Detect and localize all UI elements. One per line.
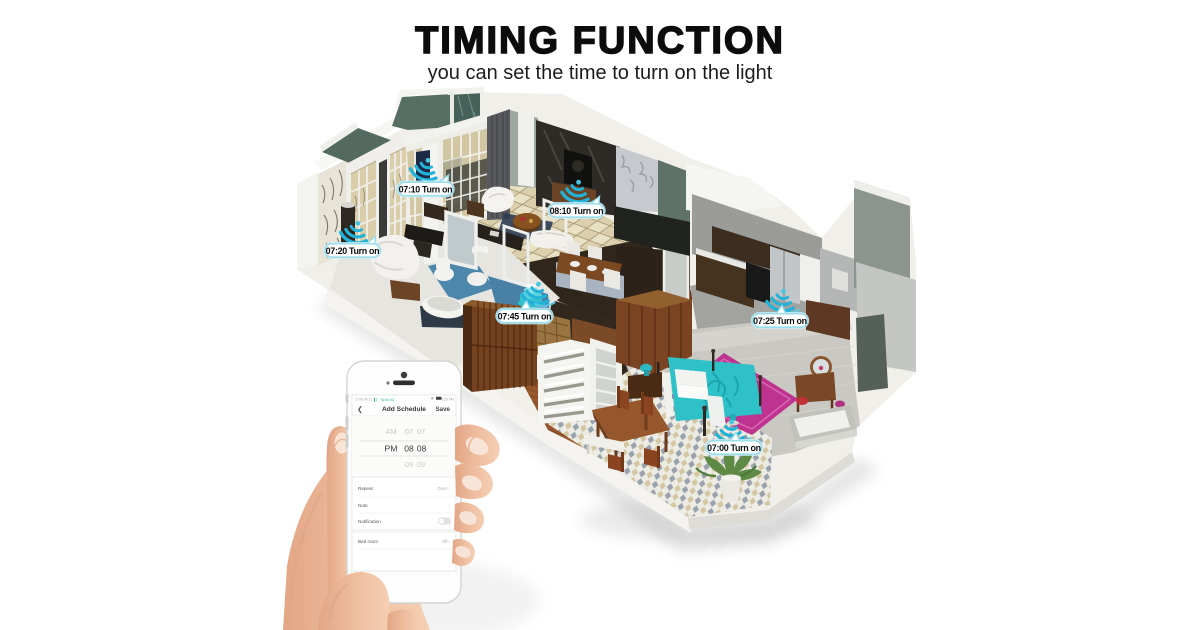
svg-text:07:10 Turn on: 07:10 Turn on (399, 184, 453, 194)
svg-text:Bed room: Bed room (358, 539, 378, 544)
svg-text:17:09 09-21: 17:09 09-21 (355, 398, 372, 402)
svg-text:07:25 Turn on: 07:25 Turn on (753, 316, 807, 326)
svg-text:07: 07 (405, 427, 413, 436)
svg-text:Repeat: Repeat (358, 486, 374, 491)
svg-text:❮: ❮ (357, 406, 363, 414)
svg-text:PM: PM (385, 444, 398, 454)
svg-text:Note: Note (358, 503, 368, 508)
svg-text:08: 08 (404, 444, 414, 454)
svg-text:07:45 Turn on: 07:45 Turn on (498, 311, 552, 321)
svg-text:07: 07 (417, 427, 425, 436)
svg-text:Once ›: Once › (437, 486, 450, 491)
svg-text:Notification: Notification (358, 519, 381, 524)
svg-text:07:20 Turn on: 07:20 Turn on (326, 246, 380, 256)
svg-text:Save: Save (436, 406, 451, 413)
svg-text:▍▏ TalTal 4G: ▍▏ TalTal 4G (373, 398, 395, 402)
svg-text:08:10 Turn on: 08:10 Turn on (550, 206, 604, 216)
svg-text:08: 08 (417, 444, 427, 454)
svg-text:Add Schedule: Add Schedule (382, 406, 426, 413)
svg-text:09: 09 (417, 460, 425, 469)
svg-text:AM: AM (385, 427, 396, 436)
svg-text:09: 09 (405, 460, 413, 469)
svg-text:07:00 Turn on: 07:00 Turn on (707, 443, 761, 453)
svg-text:3:20 PM: 3:20 PM (442, 398, 454, 402)
svg-text:Off ›: Off › (442, 539, 451, 544)
